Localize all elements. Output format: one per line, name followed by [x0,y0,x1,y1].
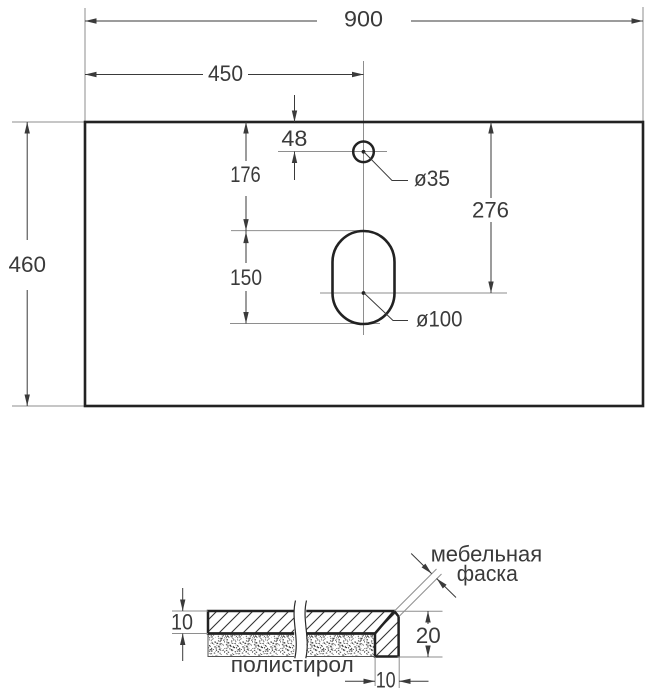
svg-text:ø100: ø100 [416,307,463,332]
svg-text:ø35: ø35 [414,166,450,191]
svg-text:10: 10 [376,668,396,688]
svg-text:150: 150 [230,265,262,290]
svg-text:полистирол: полистирол [231,652,354,677]
svg-text:276: 276 [472,198,509,223]
svg-text:48: 48 [281,126,307,151]
svg-text:фаска: фаска [457,561,519,586]
svg-text:460: 460 [9,252,47,277]
svg-text:900: 900 [344,7,383,32]
svg-text:20: 20 [416,623,441,648]
svg-text:450: 450 [208,61,243,86]
svg-text:10: 10 [171,610,193,635]
svg-text:176: 176 [230,162,261,187]
